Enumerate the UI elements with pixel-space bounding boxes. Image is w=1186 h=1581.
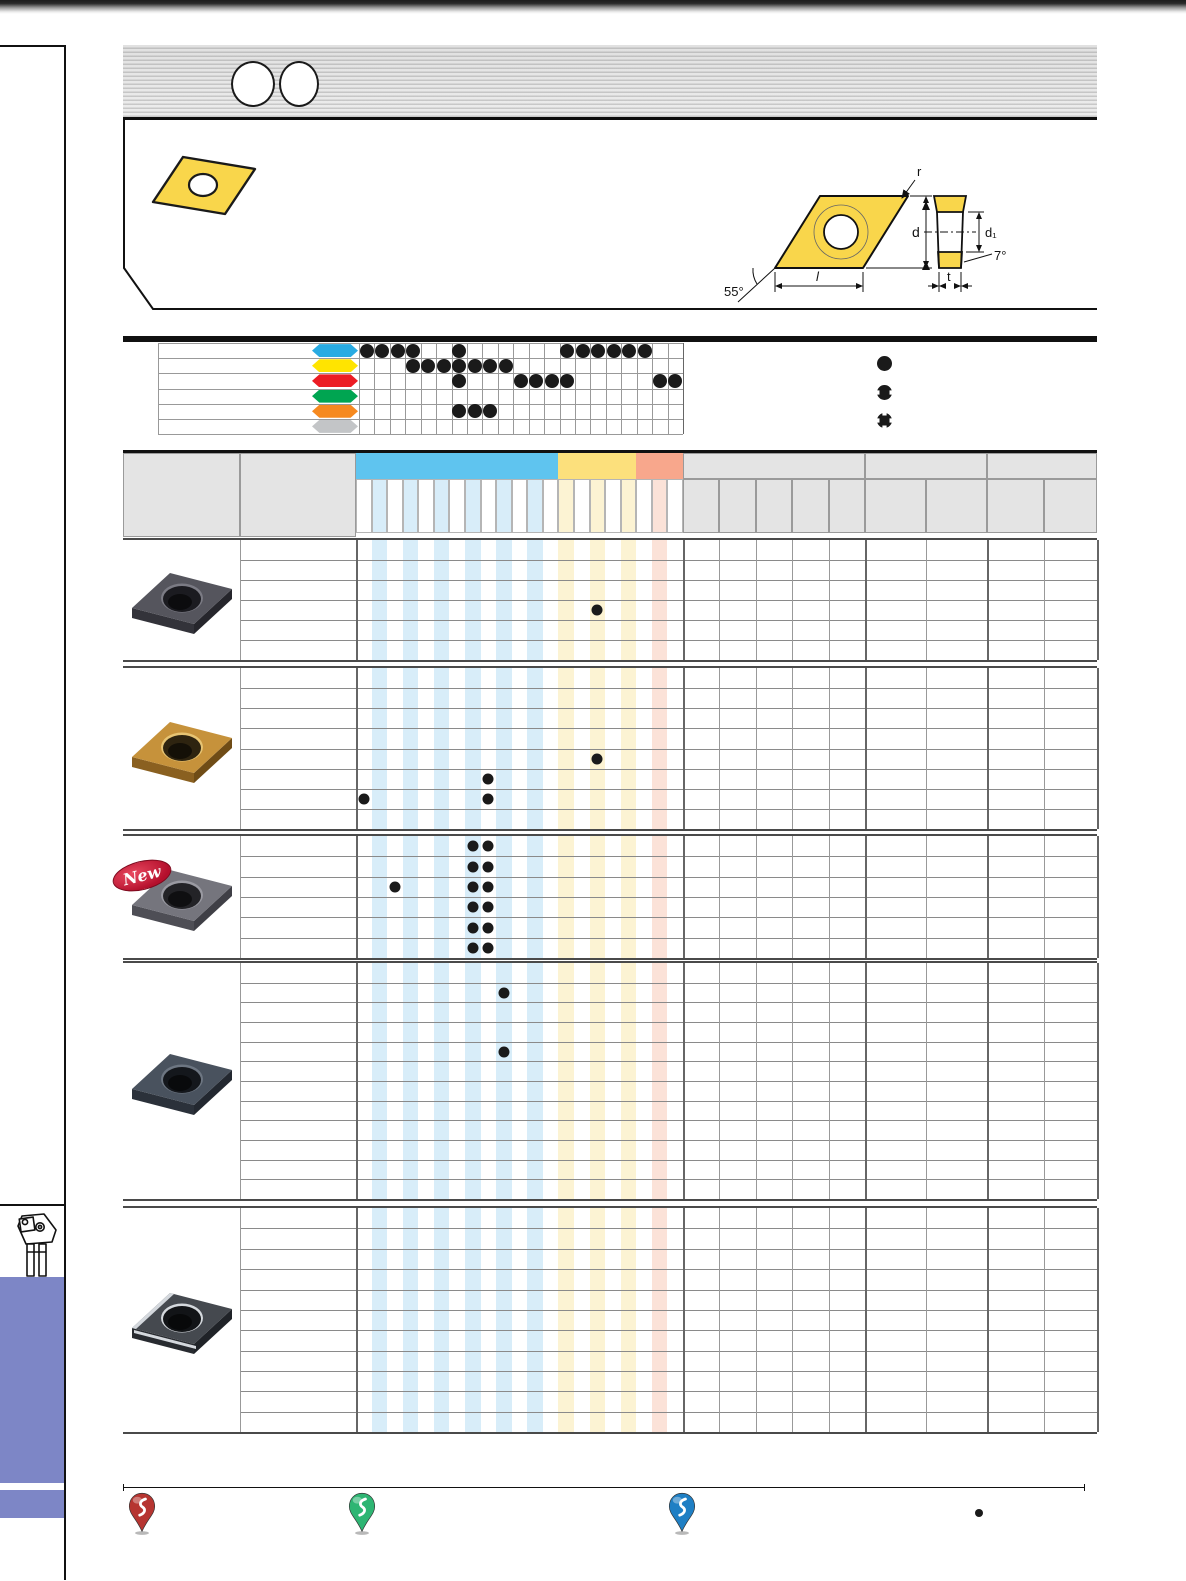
insert-photo-group-5: [126, 1280, 238, 1360]
header-band-blue: [356, 453, 558, 479]
grade-availability-dot: [358, 793, 369, 804]
header-grade-subcolumn: [667, 479, 683, 533]
grade-availability-dot: [467, 902, 478, 913]
group-bottom-border: [123, 829, 1097, 831]
page-header-band: [123, 45, 1097, 120]
table-row-line: [240, 983, 1097, 984]
application-mark-half: [591, 343, 606, 358]
grade-column-stripe: [652, 1208, 668, 1432]
header-oval-mark-2: [279, 61, 319, 107]
application-mark-half: [483, 358, 498, 373]
dimension-column-line: [1044, 963, 1045, 1199]
application-row-gray-hexagon: [312, 420, 358, 433]
application-mark-quarter: [406, 343, 421, 358]
application-mark-half: [390, 343, 405, 358]
dimension-column-line: [719, 1208, 720, 1432]
table-row-line: [240, 1160, 1097, 1161]
application-grid-column-line: [436, 343, 437, 434]
application-mark-full: [359, 343, 374, 358]
legend-symbol-full-circle: [877, 356, 892, 371]
grade-availability-dot: [483, 793, 494, 804]
application-mark-half: [483, 404, 498, 419]
table-row-line: [240, 728, 1097, 729]
grade-availability-dot: [467, 841, 478, 852]
dim-label-d1: d₁: [985, 225, 997, 240]
application-mark-half: [421, 358, 436, 373]
dimension-column-line: [719, 540, 720, 660]
grade-column-stripe: [434, 1208, 450, 1432]
designation-grade-divider: [356, 540, 358, 660]
header-band-red: [636, 453, 683, 479]
application-mark-full: [622, 343, 637, 358]
dimension-column-line: [865, 668, 867, 829]
header-section-c-subcell: [1044, 479, 1097, 533]
dimension-column-line: [792, 540, 793, 660]
grade-availability-dot: [483, 922, 494, 933]
table-row-line: [240, 877, 1097, 878]
table-row-line: [240, 1412, 1097, 1413]
dimension-column-line: [683, 540, 685, 660]
header-photo-column-cell: [123, 453, 240, 537]
grade-column-stripe: [558, 1208, 574, 1432]
insert-intro-panel: r d l 55°: [123, 120, 1097, 312]
header-grade-subcolumn: [512, 479, 528, 533]
header-grade-subcolumn: [527, 479, 543, 533]
dimension-column-line: [987, 540, 989, 660]
table-row-line: [240, 600, 1097, 601]
header-dimensions-subcell: [719, 479, 755, 533]
header-grade-subcolumn: [387, 479, 403, 533]
application-mark-full: [560, 343, 575, 358]
photo-designation-divider: [240, 963, 241, 1199]
application-row-yellow-hexagon: [312, 359, 358, 372]
chipbreaker-pin-red: [127, 1492, 157, 1536]
header-grade-subcolumn: [481, 479, 497, 533]
header-grade-subcolumn: [558, 479, 574, 533]
grade-column-stripe: [465, 1208, 481, 1432]
dimension-column-line: [756, 1208, 757, 1432]
dim-label-55deg: 55°: [724, 284, 744, 299]
group-bottom-border: [123, 1199, 1097, 1201]
header-grade-subcolumn: [621, 479, 637, 533]
header-oval-mark-1: [231, 61, 275, 107]
dimension-column-line: [756, 836, 757, 958]
dimension-column-line: [829, 836, 830, 958]
application-row-orange-hexagon: [312, 405, 358, 418]
header-grade-subcolumn: [496, 479, 512, 533]
table-row-line: [240, 1391, 1097, 1392]
dimension-column-line: [1097, 836, 1099, 958]
table-row-line: [240, 1022, 1097, 1023]
group-top-border: [123, 538, 1097, 540]
application-range-table: [123, 336, 1097, 437]
grade-availability-dot: [467, 942, 478, 953]
dimension-column-line: [829, 540, 830, 660]
dimension-column-line: [865, 540, 867, 660]
sidebar-bottom-rule: [0, 1204, 66, 1206]
dimension-column-line: [1097, 668, 1099, 829]
sidebar-top-rule: [0, 45, 66, 47]
application-table-bottom-border: [123, 339, 1097, 342]
dimension-column-line: [865, 836, 867, 958]
application-mark-full: [652, 373, 667, 388]
designation-grade-divider: [356, 1208, 358, 1432]
application-grid-column-line: [683, 343, 684, 434]
table-row-line: [240, 1042, 1097, 1043]
table-row-line: [240, 917, 1097, 918]
footer-rule: [123, 1487, 1085, 1488]
application-row-red-hexagon: [312, 374, 358, 387]
header-section-c-merged-cell: [987, 453, 1097, 479]
dimension-column-line: [792, 836, 793, 958]
dimension-column-line: [987, 836, 989, 958]
legend-symbol-quarter-circle: [877, 413, 892, 428]
grade-availability-dot: [389, 881, 400, 892]
dimension-column-line: [683, 963, 685, 1199]
header-dimensions-subcell: [756, 479, 792, 533]
header-dimensions-subcell: [792, 479, 828, 533]
header-band-yellow: [558, 453, 636, 479]
header-dimensions-merged-cell: [683, 453, 865, 479]
header-grade-subcolumn: [465, 479, 481, 533]
application-mark-full: [467, 358, 482, 373]
page-top-strip: [0, 0, 1186, 14]
table-row-line: [240, 1081, 1097, 1082]
designation-grade-divider: [356, 963, 358, 1199]
application-row-green-hexagon: [312, 390, 358, 403]
header-grade-subcolumn: [590, 479, 606, 533]
dimension-column-line: [792, 1208, 793, 1432]
application-mark-half: [575, 343, 590, 358]
table-row-line: [240, 1351, 1097, 1352]
dimension-column-line: [865, 1208, 867, 1432]
dimension-column-line: [1044, 668, 1045, 829]
dim-label-r: r: [917, 164, 922, 179]
table-row-line: [240, 1101, 1097, 1102]
grade-availability-dot: [498, 1046, 509, 1057]
application-grid-column-line: [513, 343, 514, 434]
application-mark-quarter: [544, 373, 559, 388]
group-bottom-border: [123, 660, 1097, 662]
application-mark-full: [514, 373, 529, 388]
table-row-line: [240, 856, 1097, 857]
application-row-line: [158, 434, 683, 435]
application-grid-column-line: [544, 343, 545, 434]
table-row-line: [240, 580, 1097, 581]
table-row-line: [240, 749, 1097, 750]
table-row-line: [240, 1120, 1097, 1121]
header-grade-subcolumn: [434, 479, 450, 533]
dim-label-7deg: 7°: [994, 248, 1006, 263]
table-row-line: [240, 769, 1097, 770]
table-row-line: [240, 1249, 1097, 1250]
dimension-column-line: [683, 1208, 685, 1432]
dimension-column-line: [756, 963, 757, 1199]
legend-symbol-half-circle: [877, 384, 892, 399]
application-mark-half: [436, 358, 451, 373]
application-mark-full: [560, 373, 575, 388]
sidebar-vertical-rule: [64, 45, 66, 1580]
grade-availability-dot: [498, 987, 509, 998]
dimension-column-line: [987, 1208, 989, 1432]
table-row-line: [240, 640, 1097, 641]
header-grade-subcolumn: [543, 479, 559, 533]
dimension-column-line: [719, 963, 720, 1199]
grade-availability-dot: [592, 605, 603, 616]
application-table-left-line: [158, 343, 159, 434]
application-mark-half: [529, 373, 544, 388]
dimension-column-line: [926, 668, 927, 829]
application-grid-column-line: [668, 343, 669, 434]
dimension-column-line: [792, 668, 793, 829]
dimension-column-line: [792, 963, 793, 1199]
table-row-line: [240, 1179, 1097, 1180]
header-grade-subcolumn: [605, 479, 621, 533]
table-row-line: [240, 789, 1097, 790]
dimension-column-line: [987, 668, 989, 829]
dimension-column-line: [829, 668, 830, 829]
grade-availability-dot: [483, 773, 494, 784]
table-row-line: [240, 1371, 1097, 1372]
insert-dimension-drawing: r d l 55°: [720, 150, 1050, 310]
application-mark-half: [375, 343, 390, 358]
header-dimensions-subcell: [683, 479, 719, 533]
grade-column-stripe: [527, 1208, 543, 1432]
table-row-line: [240, 809, 1097, 810]
group-bottom-border: [123, 958, 1097, 960]
group-top-border: [123, 834, 1097, 836]
grade-column-stripe: [403, 1208, 419, 1432]
application-mark-half: [452, 343, 467, 358]
table-row-line: [240, 1310, 1097, 1311]
header-grade-subcolumn: [449, 479, 465, 533]
sidebar-accent-block-small: [0, 1490, 64, 1518]
photo-designation-divider: [240, 836, 241, 958]
application-mark-half: [452, 358, 467, 373]
dimension-column-line: [1097, 963, 1099, 1199]
grade-availability-dot: [483, 841, 494, 852]
application-mark-full: [606, 343, 621, 358]
dimension-column-line: [829, 963, 830, 1199]
table-row-line: [240, 688, 1097, 689]
header-grade-subcolumn: [636, 479, 652, 533]
table-row-line: [240, 1061, 1097, 1062]
grade-availability-dot: [483, 881, 494, 892]
dimension-column-line: [756, 668, 757, 829]
application-mark-half: [406, 358, 421, 373]
header-dimensions-subcell: [829, 479, 865, 533]
dim-label-d: d: [912, 224, 920, 240]
insert-shape-sketch: [145, 148, 265, 228]
insert-photo-group-4: [126, 1041, 238, 1121]
sidebar-accent-block: [0, 1277, 64, 1483]
application-row-blue-hexagon: [312, 344, 358, 357]
new-badge-label: New: [121, 862, 163, 890]
designation-grade-divider: [356, 668, 358, 829]
dimension-column-line: [1044, 1208, 1045, 1432]
group-top-border: [123, 1206, 1097, 1208]
grade-column-stripe: [621, 1208, 637, 1432]
grade-column-stripe: [372, 1208, 388, 1432]
footer-rule-tick-left: [123, 1484, 124, 1491]
application-mark-half: [637, 343, 652, 358]
header-grade-subcolumn: [418, 479, 434, 533]
application-grid-column-line: [652, 343, 653, 434]
grade-availability-dot: [483, 902, 494, 913]
table-row-line: [240, 938, 1097, 939]
header-section-b-subcell: [865, 479, 926, 533]
application-grid-column-line: [498, 343, 499, 434]
table-row-line: [240, 1330, 1097, 1331]
grade-availability-dot: [467, 922, 478, 933]
footnote-bullet: [975, 1509, 983, 1517]
turning-toolholder-icon: [14, 1212, 60, 1283]
dimension-column-line: [865, 963, 867, 1199]
dim-label-t: t: [947, 269, 951, 284]
dimension-column-line: [926, 963, 927, 1199]
grade-availability-dot: [483, 942, 494, 953]
grade-availability-dot: [592, 753, 603, 764]
table-row-line: [240, 1228, 1097, 1229]
table-row-line: [240, 620, 1097, 621]
dimension-column-line: [756, 540, 757, 660]
header-section-b-merged-cell: [865, 453, 987, 479]
dimension-column-line: [829, 1208, 830, 1432]
table-row-line: [240, 1140, 1097, 1141]
photo-designation-divider: [240, 1208, 241, 1432]
photo-designation-divider: [240, 668, 241, 829]
application-grid-column-line: [421, 343, 422, 434]
header-grade-subcolumn: [356, 479, 372, 533]
application-mark-full: [467, 404, 482, 419]
header-section-b-subcell: [926, 479, 987, 533]
photo-designation-divider: [240, 540, 241, 660]
dim-label-l: l: [816, 269, 820, 284]
dimension-column-line: [683, 836, 685, 958]
application-mark-half: [498, 358, 513, 373]
dimension-column-line: [1097, 1208, 1099, 1432]
insert-photo-group-1: [126, 560, 238, 640]
grade-availability-dot: [467, 881, 478, 892]
grade-availability-dot: [467, 861, 478, 872]
dimension-column-line: [987, 963, 989, 1199]
catalog-page: r d l 55°: [0, 0, 1186, 1581]
dimension-column-line: [1097, 540, 1099, 660]
dimension-column-line: [926, 1208, 927, 1432]
header-section-c-subcell: [987, 479, 1044, 533]
application-mark-half: [668, 373, 683, 388]
header-grade-subcolumn: [372, 479, 388, 533]
insert-selection-table: [123, 450, 1097, 1436]
dimension-column-line: [1044, 836, 1045, 958]
application-mark-half: [452, 373, 467, 388]
insert-photo-group-2: [126, 709, 238, 789]
header-designation-column-cell: [240, 453, 356, 537]
application-grid-column-line: [529, 343, 530, 434]
table-row-line: [240, 708, 1097, 709]
dimension-column-line: [1044, 540, 1045, 660]
header-grade-subcolumn: [652, 479, 668, 533]
table-row-line: [240, 1290, 1097, 1291]
table-row-line: [240, 897, 1097, 898]
dimension-column-line: [719, 836, 720, 958]
group-bottom-border: [123, 1432, 1097, 1434]
header-grade-subcolumn: [403, 479, 419, 533]
dimension-column-line: [683, 668, 685, 829]
application-grid-column-line: [467, 343, 468, 434]
grade-column-stripe: [590, 1208, 606, 1432]
header-grade-subcolumn: [574, 479, 590, 533]
application-grid-column-line: [482, 343, 483, 434]
chipbreaker-pin-blue: [667, 1492, 697, 1536]
table-row-line: [240, 1269, 1097, 1270]
grade-availability-dot: [483, 861, 494, 872]
table-row-line: [240, 1002, 1097, 1003]
dimension-column-line: [926, 836, 927, 958]
chipbreaker-pin-green: [347, 1492, 377, 1536]
group-top-border: [123, 961, 1097, 963]
dimension-column-line: [926, 540, 927, 660]
footer-rule-tick-right: [1084, 1484, 1085, 1491]
table-row-line: [240, 560, 1097, 561]
designation-grade-divider: [356, 836, 358, 958]
group-top-border: [123, 666, 1097, 668]
dimension-column-line: [719, 668, 720, 829]
grade-column-stripe: [496, 1208, 512, 1432]
application-mark-half: [452, 404, 467, 419]
